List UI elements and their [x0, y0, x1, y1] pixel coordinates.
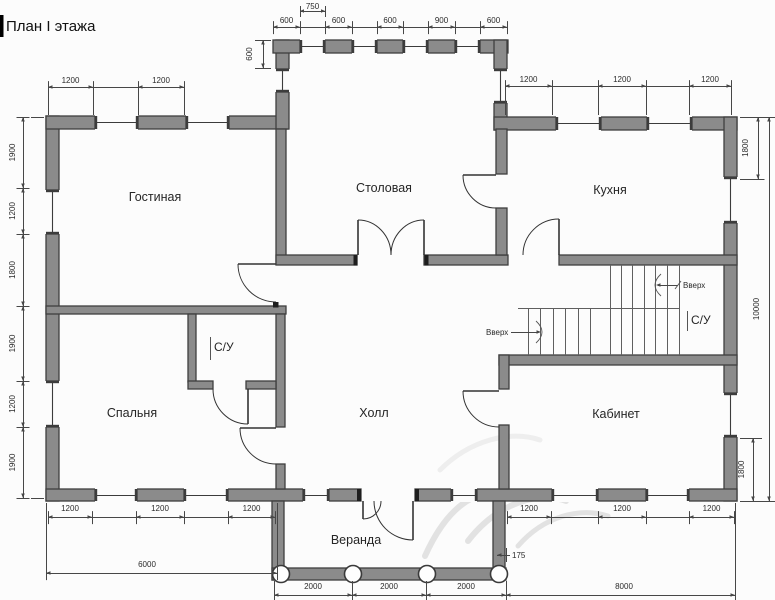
svg-text:Кабинет: Кабинет — [592, 407, 640, 421]
svg-text:1200: 1200 — [152, 76, 170, 85]
svg-text:1200: 1200 — [701, 75, 719, 84]
svg-text:Вверх: Вверх — [486, 328, 508, 337]
svg-text:1200: 1200 — [703, 504, 721, 513]
svg-text:1800: 1800 — [737, 460, 746, 478]
svg-text:1200: 1200 — [151, 504, 169, 513]
svg-text:1200: 1200 — [520, 75, 538, 84]
svg-text:600: 600 — [332, 16, 346, 25]
svg-text:1900: 1900 — [8, 453, 17, 471]
svg-text:1200: 1200 — [8, 202, 17, 220]
svg-text:600: 600 — [280, 16, 294, 25]
svg-text:10000: 10000 — [752, 297, 761, 320]
svg-text:600: 600 — [487, 16, 501, 25]
svg-text:1800: 1800 — [8, 261, 17, 279]
svg-text:1200: 1200 — [613, 504, 631, 513]
svg-text:1900: 1900 — [8, 143, 17, 161]
svg-text:Гостиная: Гостиная — [129, 190, 181, 204]
svg-text:1200: 1200 — [520, 504, 538, 513]
svg-text:1200: 1200 — [8, 395, 17, 413]
svg-text:Холл: Холл — [359, 406, 388, 420]
svg-text:600: 600 — [383, 16, 397, 25]
svg-text:1200: 1200 — [62, 76, 80, 85]
svg-text:Спальня: Спальня — [107, 406, 157, 420]
svg-text:175: 175 — [512, 551, 526, 560]
svg-text:1200: 1200 — [61, 504, 79, 513]
svg-text:1200: 1200 — [243, 504, 261, 513]
svg-text:План I этажа: План I этажа — [6, 18, 96, 35]
svg-text:С/У: С/У — [214, 340, 234, 354]
svg-text:С/У: С/У — [691, 313, 711, 327]
svg-text:Столовая: Столовая — [356, 181, 412, 195]
svg-text:2000: 2000 — [380, 582, 398, 591]
svg-text:1200: 1200 — [613, 75, 631, 84]
svg-text:Веранда: Веранда — [331, 533, 381, 547]
svg-text:6000: 6000 — [138, 560, 156, 569]
svg-text:1900: 1900 — [8, 334, 17, 352]
svg-text:Кухня: Кухня — [593, 183, 626, 197]
svg-text:900: 900 — [435, 16, 449, 25]
svg-text:Вверх: Вверх — [683, 281, 705, 290]
svg-text:1800: 1800 — [741, 139, 750, 157]
svg-text:750: 750 — [306, 2, 320, 11]
svg-text:2000: 2000 — [457, 582, 475, 591]
svg-text:2000: 2000 — [304, 582, 322, 591]
svg-text:600: 600 — [245, 47, 254, 61]
svg-text:8000: 8000 — [615, 582, 633, 591]
